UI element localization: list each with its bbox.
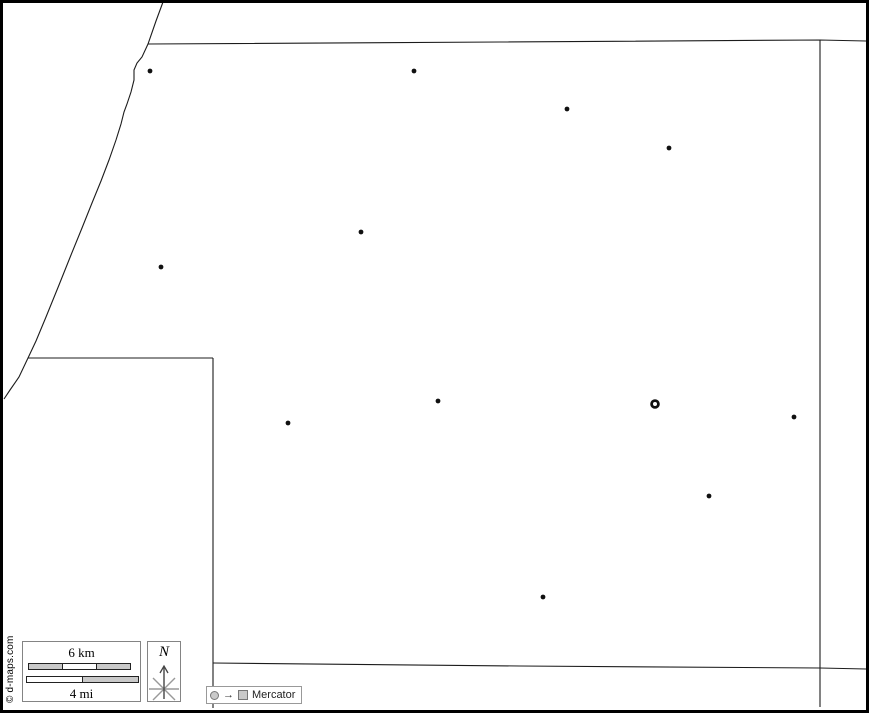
county-outline-map [0,0,869,713]
arrow-right-icon: → [223,690,234,701]
scale-bar-box: 6 km 4 mi [22,641,141,702]
map-page: 6 km 4 mi N → Mercator © d-maps.com [0,0,869,713]
scale-mi-label: 4 mi [23,687,140,700]
town-dot [359,230,364,235]
town-dot [667,146,672,151]
town-dot [286,421,291,426]
town-dot [159,265,164,270]
town-dot [412,69,417,74]
globe-circle-icon [210,691,219,700]
projection-label: Mercator [252,690,295,701]
mi-bar-segment [27,677,82,682]
north-arrow-icon [148,661,180,701]
km-bar-segment [97,664,130,669]
town-dot [148,69,153,74]
town-dot [436,399,441,404]
north-boundary [148,40,866,44]
mi-bar-segment [82,677,138,682]
town-dot [792,415,797,420]
county-seat-marker [652,401,659,408]
projection-legend: → Mercator [206,686,302,704]
town-dot [565,107,570,112]
scale-km-label: 6 km [23,646,140,659]
copyright-text: © d-maps.com [5,635,16,703]
northwest-diagonal-boundary [4,2,163,399]
town-dot [707,494,712,499]
projected-square-icon [238,690,248,700]
km-bar-segment [29,664,62,669]
compass-box: N [147,641,181,702]
mi-scale-bar [26,676,139,683]
km-bar-segment [62,664,97,669]
south-boundary [213,663,866,669]
north-label: N [148,645,180,660]
town-dot [541,595,546,600]
km-scale-bar [28,663,131,670]
